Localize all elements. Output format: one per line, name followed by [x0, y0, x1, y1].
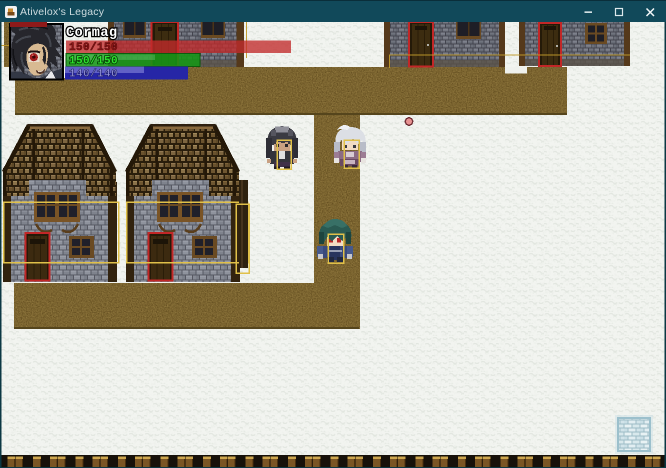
svg-text:150/150: 150/150 — [69, 42, 118, 54]
svg-text:150/150: 150/150 — [69, 56, 118, 68]
svg-text:Cormag: Cormag — [66, 26, 118, 41]
svg-text:140/140: 140/140 — [69, 69, 118, 81]
